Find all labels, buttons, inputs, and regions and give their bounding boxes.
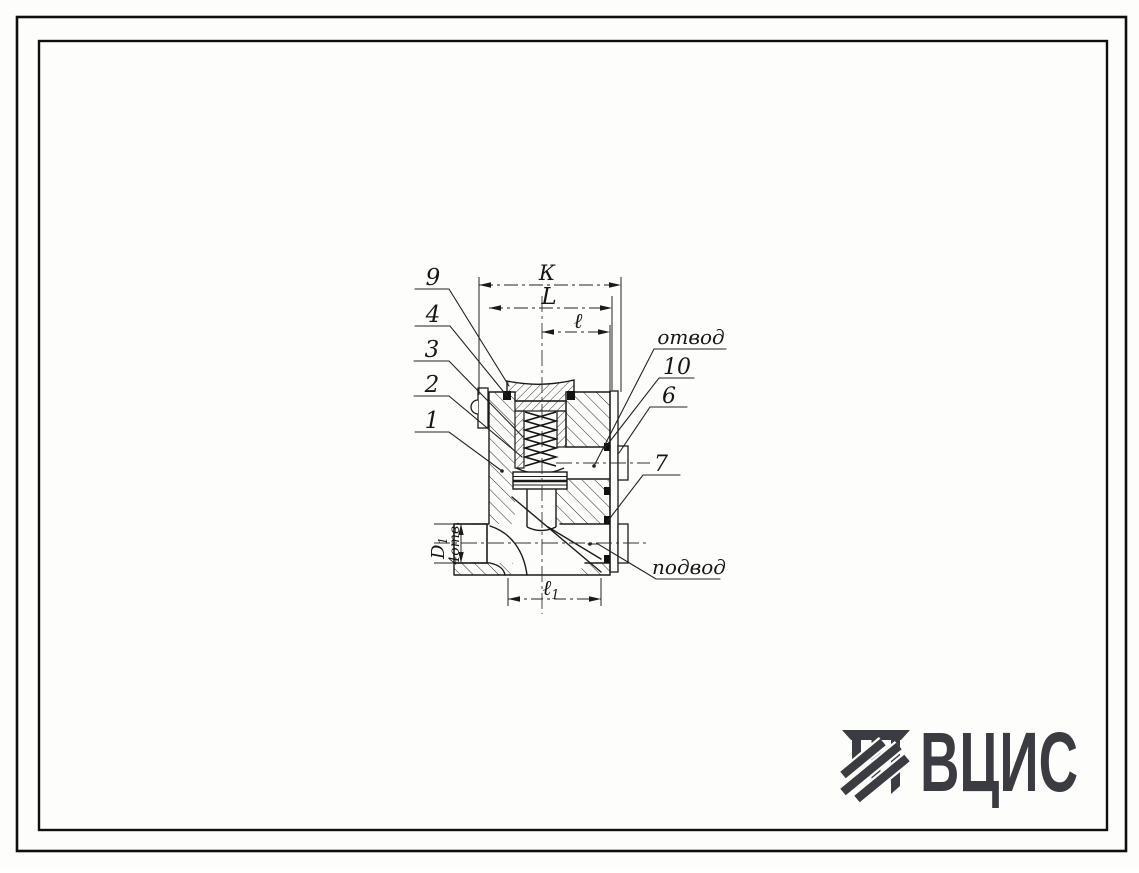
flange-seal-2: [604, 487, 610, 495]
dim-l1-label: ℓ1: [542, 576, 559, 603]
publisher-logo: ВЦИС: [842, 715, 1078, 809]
cap-seal-right: [567, 391, 575, 400]
body-left-wall: [489, 392, 515, 524]
spring-part3: [525, 412, 556, 466]
valve-section-drawing: 9 4 3 2 1 отвод 10 6 7 подвод К L ℓ ℓ1 D…: [0, 0, 1139, 869]
body-upper-right: [566, 392, 610, 447]
callout-4-label: 4: [425, 302, 441, 328]
callout-2-label: 2: [424, 372, 440, 398]
dim-l-label: ℓ: [574, 309, 583, 333]
callout-1-label: 1: [425, 408, 440, 434]
spring-retainer: [515, 401, 566, 411]
callout-9-label: 9: [426, 265, 441, 291]
inlet-label: подвод: [652, 555, 726, 579]
outlet-label: отвод: [657, 325, 724, 349]
guide-sleeve-right: [557, 411, 566, 447]
top-cap-part9: [507, 380, 574, 401]
guide-sleeve-left: [515, 411, 524, 468]
poppet-stem: [527, 489, 556, 531]
callout-10-label: 10: [663, 355, 691, 380]
callout-6-label: 6: [662, 384, 676, 409]
flange-seal-4: [604, 555, 610, 563]
dim-K-label: К: [538, 261, 556, 285]
drawing-sheet: 9 4 3 2 1 отвод 10 6 7 подвод К L ℓ ℓ1 D…: [0, 0, 1139, 869]
callout-3-label: 3: [425, 337, 440, 363]
logo-text: ВЦИС: [920, 715, 1078, 809]
logo-emblem-column-icon: [842, 730, 910, 799]
right-flange-plate: [610, 391, 618, 572]
dim-L-label: L: [540, 284, 556, 310]
poppet-collar: [513, 472, 567, 489]
left-plug-bump: [471, 400, 478, 414]
dim-holes-label: 4отв.: [447, 521, 463, 565]
leader-6: [619, 407, 687, 453]
callout-7-label: 7: [654, 452, 668, 477]
